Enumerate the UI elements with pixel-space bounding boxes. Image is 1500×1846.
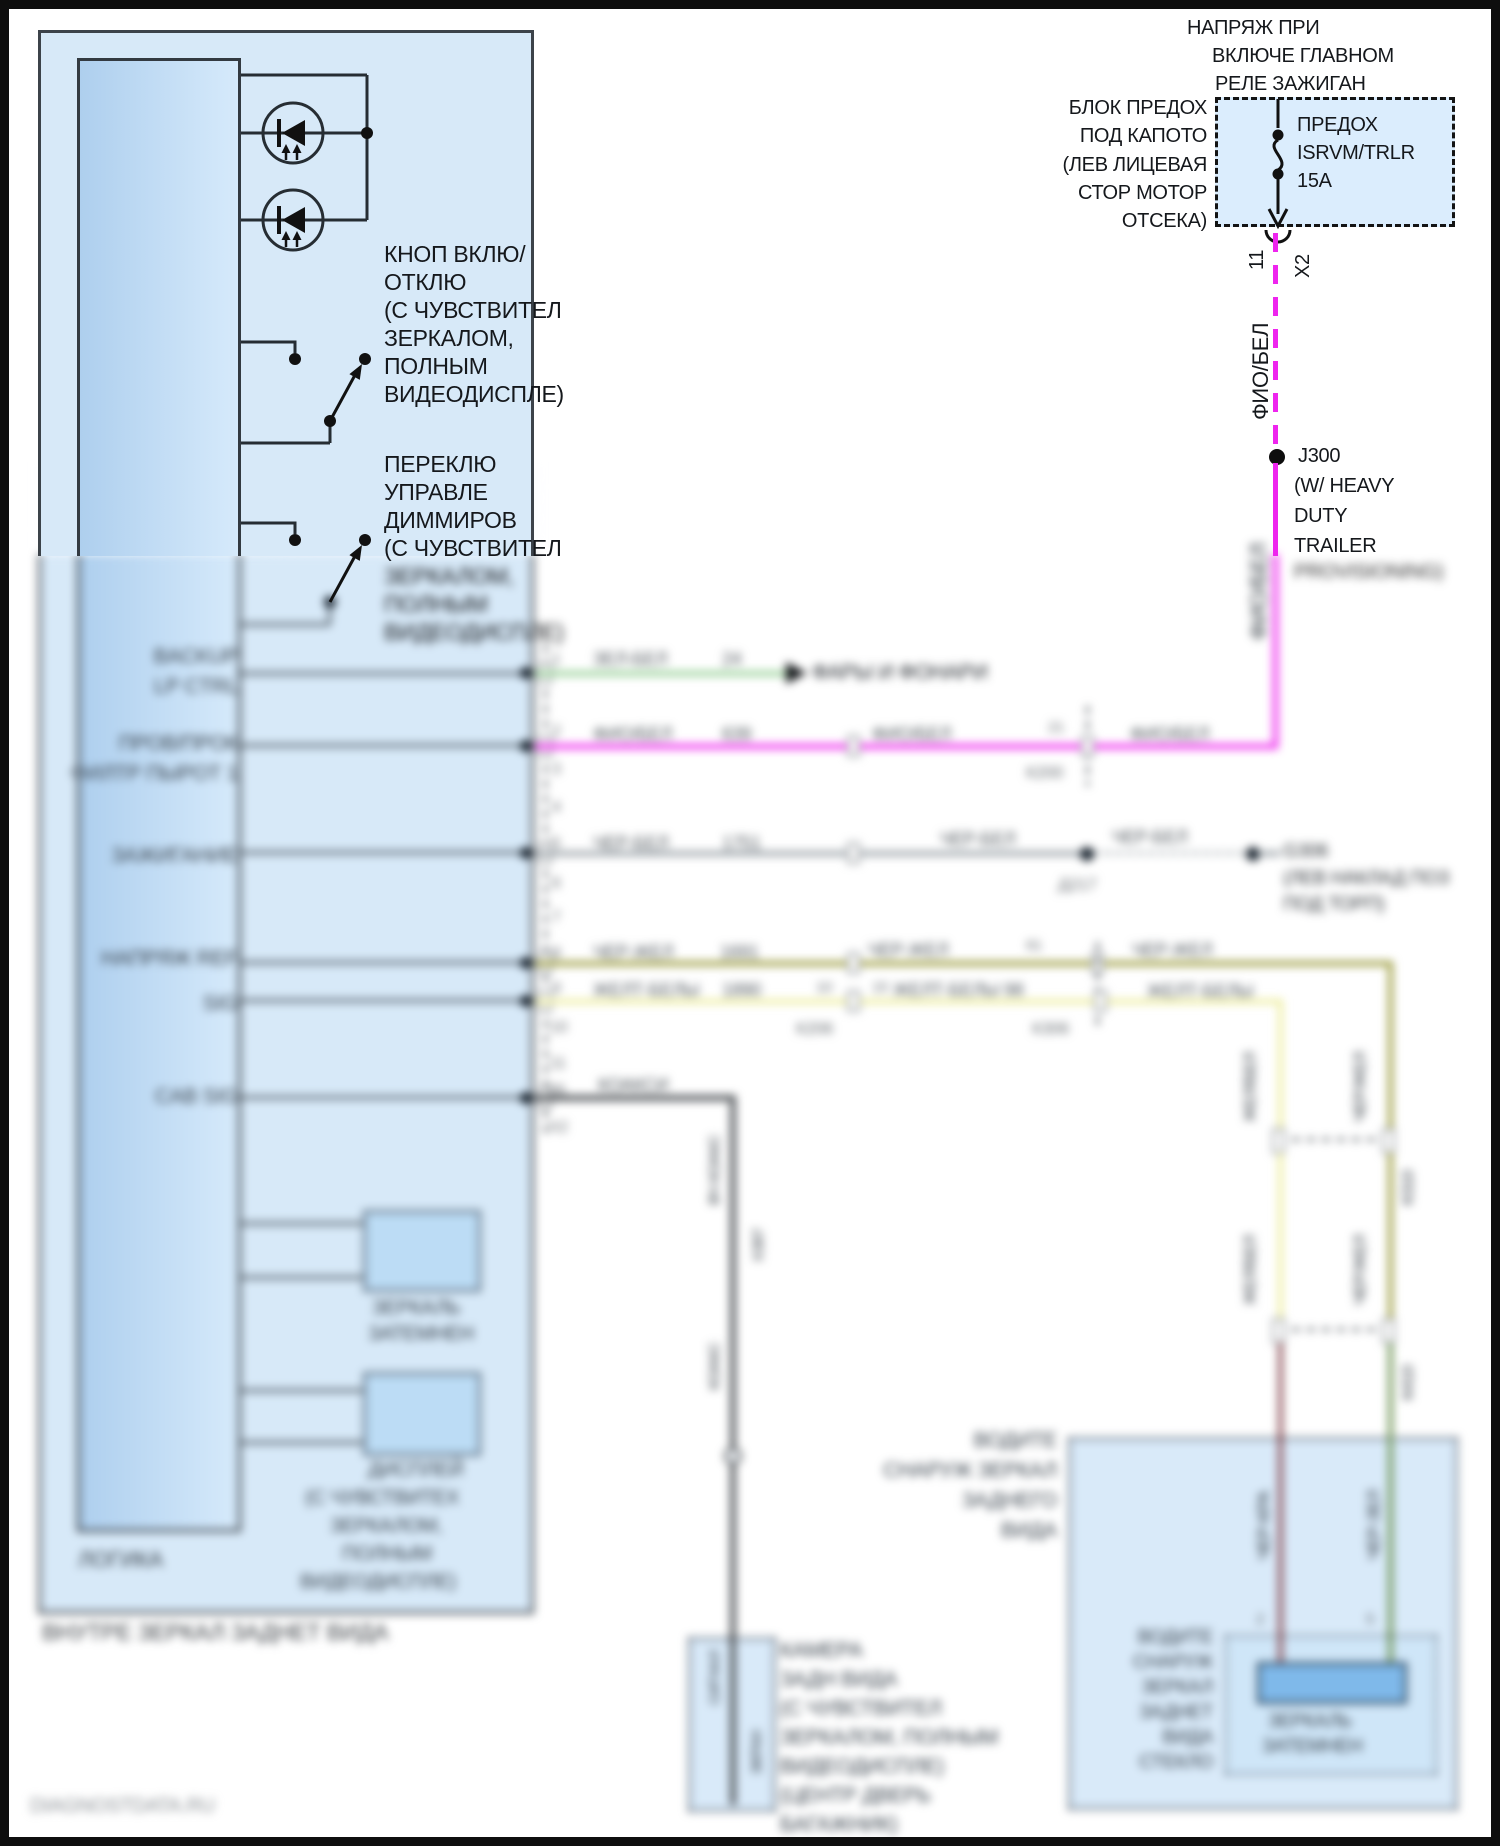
onoff-switch-icon xyxy=(241,342,371,443)
dimmer-label-3: ДИММИРОВ xyxy=(384,508,517,532)
button-label-1: КНОП ВКЛЮ/ xyxy=(384,242,525,266)
junction-dot xyxy=(361,127,373,139)
fuse-block-label-5: ОТСЕКА) xyxy=(947,211,1207,232)
fuse-block-label-3: (ЛЕВ ЛИЦЕВАЯ xyxy=(947,155,1207,176)
fuse-connector-x2: X2 xyxy=(1292,254,1315,278)
dimmer-label-4: (С ЧУВСТВИТЕЛ xyxy=(384,536,562,560)
dimmer-label-2: УПРАВЛЕ xyxy=(384,480,488,504)
splice-note-2: DUTY xyxy=(1294,506,1347,527)
fuse-block-label-2: ПОД КАПОТО xyxy=(947,126,1207,147)
fuse-pin-11: 11 xyxy=(1246,250,1269,270)
button-label-5: ПОЛНЫМ xyxy=(384,354,488,378)
dimmer-switch-icon xyxy=(241,523,371,602)
button-label-4: ЗЕРКАЛОМ, xyxy=(384,326,514,350)
supply-title-2: ВКЛЮЧЕ ГЛАВНОМ xyxy=(1212,46,1394,67)
photo-diode-icon-2 xyxy=(277,206,305,247)
dimmer-label-1: ПЕРЕКЛЮ xyxy=(384,452,496,476)
fuse-name-2: ISRVM/TRLR xyxy=(1297,143,1415,164)
fuse-name-1: ПРЕДОХ xyxy=(1297,115,1378,136)
button-label-2: ОТКЛЮ xyxy=(384,270,466,294)
splice-note-3: TRAILER xyxy=(1294,536,1376,557)
connector-socket-icon xyxy=(1266,230,1290,242)
fuse-icon xyxy=(1269,99,1287,226)
fuse-name-3: 15A xyxy=(1297,171,1332,192)
splice-id: J300 xyxy=(1298,446,1340,467)
fuse-block-label-1: БЛОК ПРЕДОХ xyxy=(947,98,1207,119)
supply-title-1: НАПРЯЖ ПРИ xyxy=(1187,18,1319,39)
feed-wire-color-label: ФИО/БЕЛ xyxy=(1248,323,1274,420)
button-label-6: ВИДЕОДИСПЛЕ) xyxy=(384,382,564,406)
splice-note-1: (W/ HEAVY xyxy=(1294,476,1394,497)
supply-title-3: РЕЛЕ ЗАЖИГАН xyxy=(1215,74,1366,95)
button-label-3: (С ЧУВСТВИТЕЛ xyxy=(384,298,562,322)
wiring-diagram-page: 1 2 3 4 5 6 7 8 9 10 11 26 X2 BACKUP LP … xyxy=(0,0,1500,1846)
feed-wire-vertical-upper xyxy=(1273,463,1278,556)
photo-diode-icon xyxy=(277,119,305,160)
fuse-block-label-4: СТОР МОТОР xyxy=(947,183,1207,204)
